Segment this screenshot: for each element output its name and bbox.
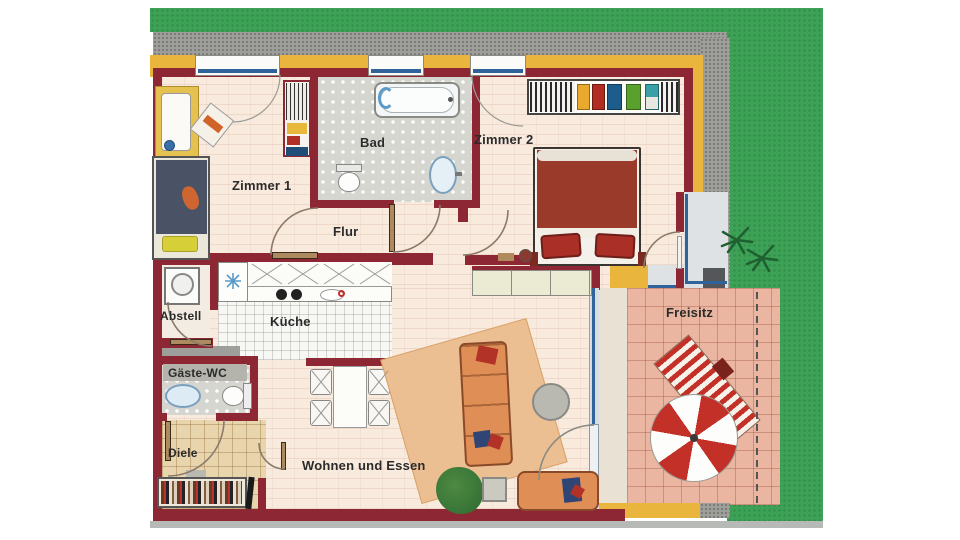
wall-zimmer1-east xyxy=(310,77,318,208)
toilet-bad-tank xyxy=(336,164,362,172)
wall-hall-east-stub xyxy=(258,478,266,516)
wardrobe-shirt-yellow xyxy=(577,84,590,110)
desk-stool xyxy=(164,140,175,151)
wall-bad-south-right xyxy=(434,200,480,208)
terrace-threshold-strip xyxy=(598,288,627,505)
room-label-freisitz: Freisitz xyxy=(666,305,713,320)
freezer-unit xyxy=(218,262,248,302)
room-label-zimmer1: Zimmer 1 xyxy=(232,178,291,193)
dining-chair xyxy=(310,369,332,395)
wardrobe-folded-teal xyxy=(645,84,659,110)
grass-strip-top xyxy=(150,8,823,32)
window-glass-line xyxy=(371,69,421,73)
toilet-wc-bowl xyxy=(222,386,244,406)
bedside-item xyxy=(519,249,532,262)
wall-wc-south-right xyxy=(216,413,258,421)
bed-pillow-right xyxy=(594,233,635,259)
room-label-flur: Flur xyxy=(333,224,358,239)
dining-chair xyxy=(368,400,390,426)
bed-foot-nub-right xyxy=(638,252,646,266)
sink-wc xyxy=(165,384,201,408)
door-leaf-bad xyxy=(389,204,395,252)
wall-zimmer2-west-stub xyxy=(458,200,468,222)
wardrobe-zimmer1-box-yellow xyxy=(287,123,307,134)
wardrobe-shirt-green xyxy=(626,84,641,110)
dining-wall-bar xyxy=(306,358,390,366)
sideboard xyxy=(472,270,592,296)
bench xyxy=(517,471,599,511)
bed-double-blanket xyxy=(537,150,637,228)
room-label-kueche: Küche xyxy=(270,314,311,329)
stove-burner-2 xyxy=(291,289,302,300)
wall-storage-east xyxy=(210,265,218,310)
room-label-abstell: Abstell xyxy=(160,309,201,323)
room-label-diele: Diele xyxy=(168,446,198,460)
wardrobe-zimmer1-box-red xyxy=(287,136,300,145)
bedside-mat xyxy=(498,253,514,261)
window-zimmer1 xyxy=(195,55,280,76)
gravel-path-top xyxy=(153,32,727,56)
door-leaf-loggia xyxy=(677,236,682,269)
plant-indoor xyxy=(436,467,483,514)
room-label-gaeste-wc: Gäste-WC xyxy=(168,366,227,380)
bed-single-pillow xyxy=(162,236,198,252)
floor-plan-scan: Zimmer 1 Bad Zimmer 2 Flur Abstell Küche… xyxy=(0,0,960,540)
side-table-square xyxy=(482,477,507,502)
wall-loggia-upper xyxy=(676,192,684,232)
dining-chair xyxy=(310,400,332,426)
door-leaf-abstell xyxy=(170,339,212,345)
kitchen-upper-cabinets xyxy=(248,262,392,287)
wardrobe-shirt-red xyxy=(592,84,605,110)
wardrobe-hanging-clothes-left xyxy=(530,82,575,112)
corner-insulation-southeast xyxy=(610,265,648,288)
dining-table xyxy=(333,366,367,428)
wall-wc-south-left xyxy=(153,413,167,421)
wardrobe-hanging-clothes-right xyxy=(661,82,678,112)
door-leaf-diele xyxy=(281,442,286,470)
sink-bad xyxy=(429,156,457,194)
wall-bad-south-left xyxy=(310,200,394,208)
shoe-rack-contents xyxy=(161,481,242,504)
kitchen-faucet xyxy=(338,290,345,297)
window-glass-line xyxy=(198,69,277,73)
door-leaf-zimmer1 xyxy=(272,252,318,259)
loggia-glazing-west xyxy=(685,194,688,284)
room-label-wohnen-und-essen: Wohnen und Essen xyxy=(302,458,426,473)
entrance-mat xyxy=(703,268,725,288)
gravel-patch-bottom xyxy=(700,503,730,518)
washing-machine-drum xyxy=(171,273,194,296)
loggia-glazing-south xyxy=(685,281,727,284)
scan-bottom-border xyxy=(150,521,823,528)
bed-pillow-left xyxy=(540,233,582,260)
wardrobe-zimmer1-box-blue xyxy=(286,147,308,156)
stove-burner-1 xyxy=(276,289,287,300)
window-glass-line xyxy=(473,69,523,73)
parasol-pole xyxy=(690,434,698,442)
wall-loggia-lower xyxy=(676,268,684,288)
toilet-wc-tank xyxy=(243,383,252,409)
bathtub-drain xyxy=(448,97,453,102)
coffee-table-round xyxy=(532,383,570,421)
wardrobe-zimmer1-clothes xyxy=(286,83,308,120)
window-bad xyxy=(368,55,424,76)
room-label-zimmer2: Zimmer 2 xyxy=(474,132,533,147)
wardrobe-shirt-blue xyxy=(607,84,622,110)
wall-right-upper xyxy=(684,68,693,192)
toilet-bad-bowl xyxy=(338,172,360,192)
shower-fitting xyxy=(378,87,394,109)
window-zimmer2 xyxy=(470,55,526,76)
bed-double-headroll xyxy=(537,150,637,161)
room-label-bad: Bad xyxy=(360,135,385,150)
sink-bad-faucet xyxy=(455,172,462,176)
